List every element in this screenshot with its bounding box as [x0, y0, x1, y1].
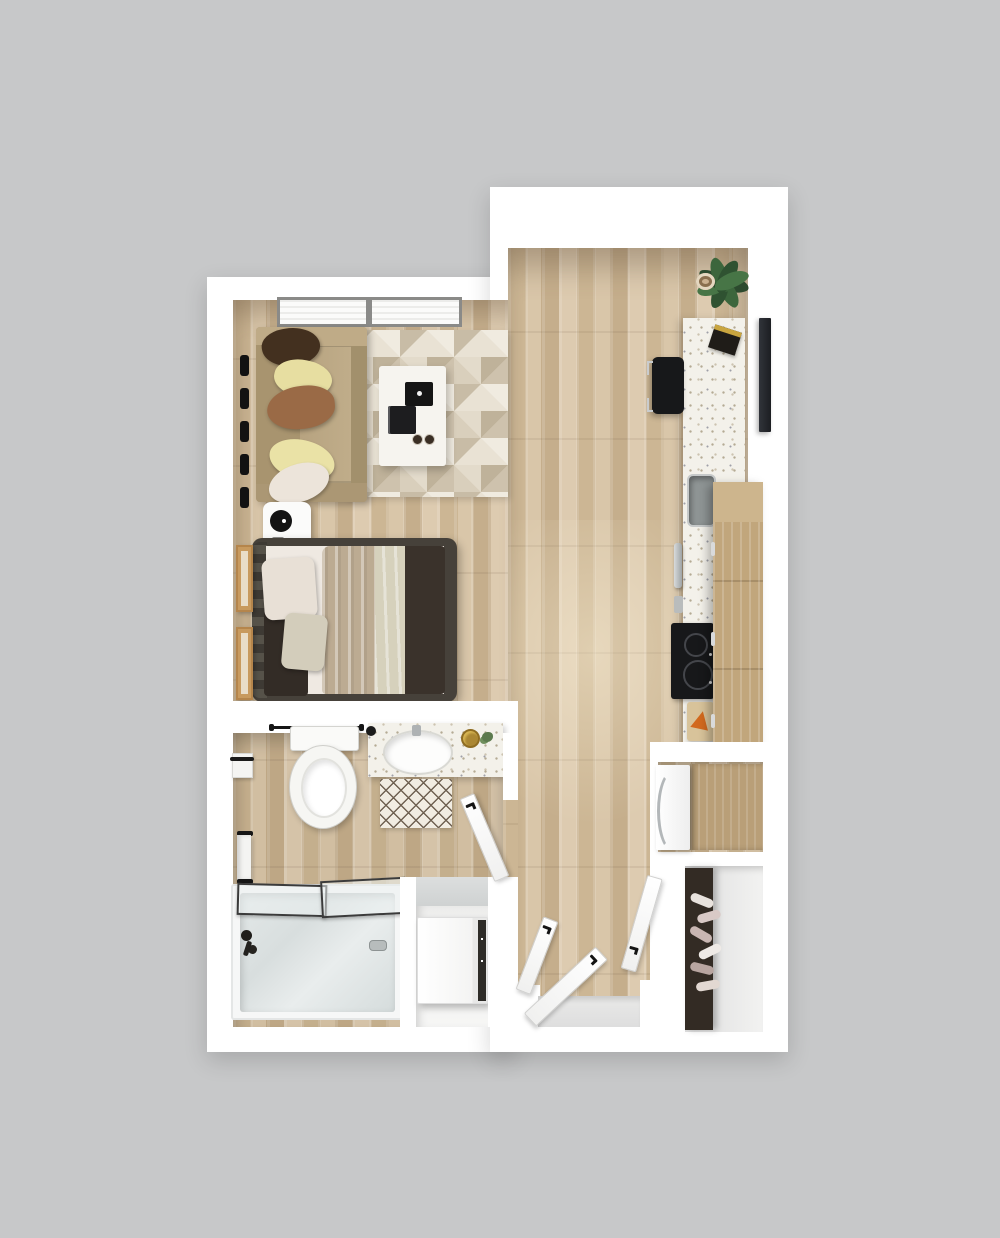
floor-plan-canvas	[0, 0, 1000, 1238]
tablet-icon	[388, 406, 416, 434]
bathroom-doorway-floor	[503, 795, 518, 877]
vanity-counter	[368, 723, 503, 777]
wall-art-frame	[236, 627, 253, 700]
fan-head	[270, 510, 292, 532]
cabinet-handle-icon	[711, 542, 715, 556]
coffee-cup-icon	[424, 434, 435, 445]
blind-hardware-icon	[240, 355, 249, 376]
dishwasher-handle-icon	[674, 596, 683, 613]
tv	[759, 318, 771, 432]
sofa-front-edge	[351, 346, 367, 483]
wall-hook-icon	[366, 726, 376, 736]
toilet-bowl	[289, 745, 357, 829]
door-handle-icon	[542, 925, 551, 931]
shower-glass-panel	[237, 883, 328, 917]
tp-bracket	[230, 757, 254, 761]
door-handle-icon	[629, 946, 638, 951]
toilet-paper-holder	[232, 753, 253, 778]
shower-glass-panel	[320, 877, 407, 918]
washer-dot	[481, 960, 483, 962]
bath-mat	[380, 779, 452, 828]
coffee-cup-icon	[412, 434, 423, 445]
small-plant-icon	[482, 732, 493, 742]
towel-bar-end	[269, 724, 274, 731]
blind-hardware-icon	[240, 454, 249, 475]
burner-icon	[683, 660, 713, 690]
living-window	[277, 297, 462, 327]
blind-hardware-icon	[240, 388, 249, 409]
wall-art-mat	[241, 633, 248, 694]
window-pane	[372, 300, 459, 324]
fan-dot	[282, 519, 286, 523]
cabinet-handle-icon	[711, 714, 715, 728]
bed-blanket-tan	[322, 546, 377, 694]
bed-blanket-light	[375, 546, 407, 694]
nook-cabinet-front	[690, 764, 763, 850]
vanity-sink	[383, 730, 453, 775]
cooktop	[671, 623, 714, 699]
tub-faucet-icon	[241, 930, 252, 941]
plant-pot-icon	[696, 273, 715, 290]
cooktop-knob	[709, 653, 712, 656]
cooktop-knob	[709, 681, 712, 684]
hand-towel	[237, 835, 251, 880]
cabinet-handle-icon	[711, 632, 715, 646]
stool-frame-icon	[647, 361, 653, 375]
door-handle-icon	[465, 802, 474, 808]
wall-art-frame	[236, 545, 253, 612]
cutting-board	[687, 702, 714, 741]
washer-dryer	[417, 917, 488, 1004]
gold-tray-icon	[461, 729, 480, 748]
upper-cabinets	[713, 482, 763, 756]
bed-pillow-small	[281, 612, 329, 672]
washer-dot	[481, 938, 483, 940]
kitchen-faucet-icon	[674, 543, 682, 588]
door-handle-icon	[590, 954, 598, 963]
window-pane	[280, 300, 366, 324]
washer-control-panel	[478, 920, 486, 1001]
burner-icon	[684, 633, 708, 657]
bed	[252, 538, 457, 702]
blind-hardware-icon	[240, 421, 249, 442]
toilet-seat	[301, 758, 347, 818]
food-wedge-icon	[690, 709, 711, 730]
drain-icon	[369, 940, 387, 951]
fridge-handle-icon	[657, 770, 689, 852]
towel-bar-end	[359, 724, 364, 731]
bathroom-right-wall	[503, 733, 518, 800]
wall-art-mat	[241, 551, 248, 606]
coffee-table	[379, 366, 446, 466]
blind-hardware-icon	[240, 487, 249, 508]
bed-blanket-dark	[405, 546, 445, 694]
vanity-faucet-icon	[412, 725, 421, 736]
kitchen-sink	[687, 474, 716, 527]
stool-frame-icon	[647, 398, 653, 412]
laundry-left-wall	[400, 877, 416, 1027]
laptop-dot	[417, 391, 422, 396]
bar-stool	[652, 357, 684, 414]
laundry-right-wall	[488, 877, 518, 1027]
bed-pillow-large	[261, 556, 318, 621]
